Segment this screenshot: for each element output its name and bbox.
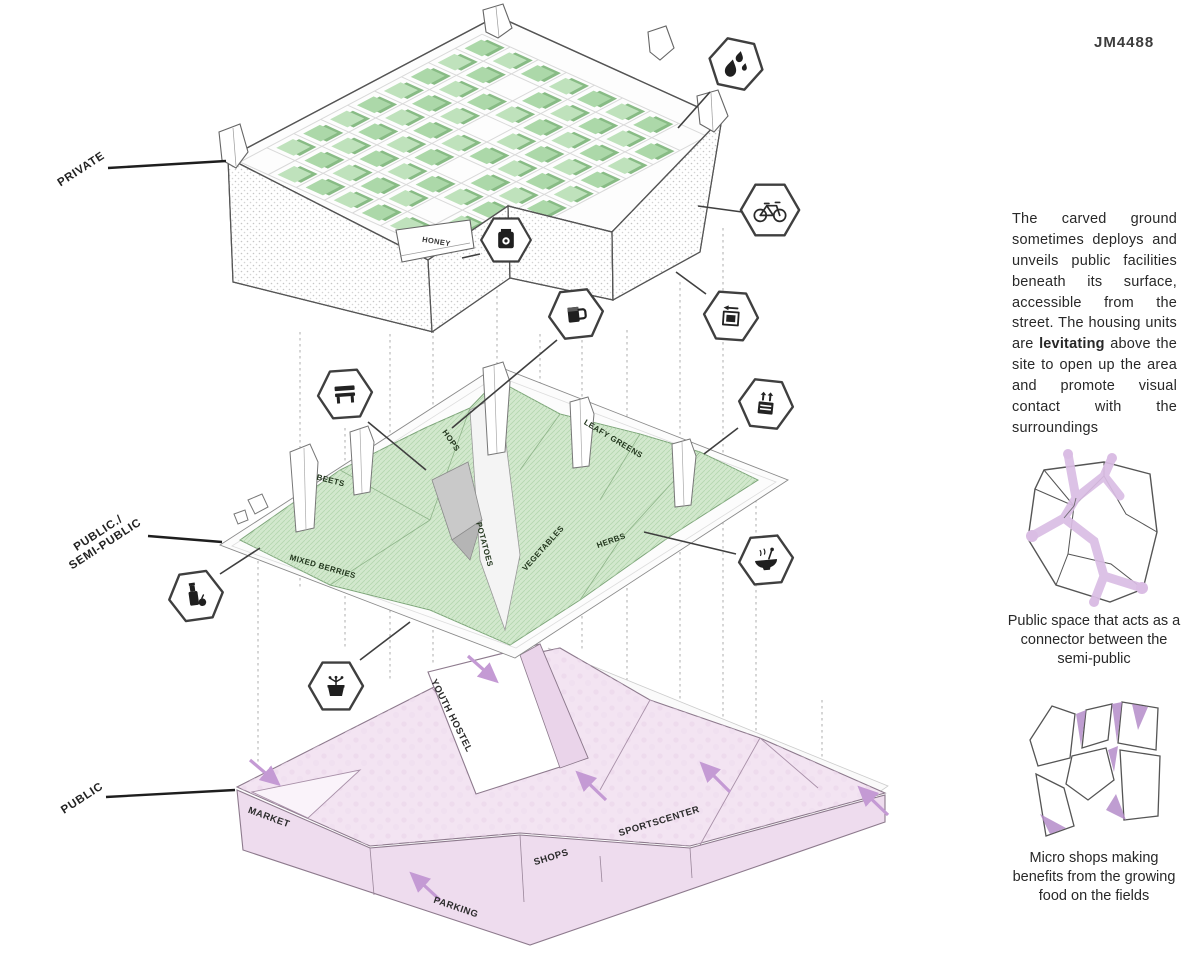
micro-shops-mini-diagram	[1020, 698, 1168, 846]
water-drops-icon	[705, 35, 768, 92]
connector-mini-diagram	[1016, 446, 1168, 608]
bench-icon	[316, 369, 373, 419]
description-paragraph: The carved ground sometimes deploys and …	[1012, 209, 1177, 439]
bicycle-icon	[741, 185, 799, 236]
private-level-drawing: HONEY	[219, 4, 728, 332]
package-return-icon	[702, 291, 759, 341]
milk-bottle-icon	[166, 569, 226, 623]
project-code: JM4488	[1094, 34, 1154, 51]
honey-jar-icon	[481, 218, 531, 261]
micro-shops-caption: Micro shops making benefits from the gro…	[1004, 849, 1184, 906]
level-labels: PRIVATE PUBLIC./ SEMI-PUBLIC PUBLIC	[56, 150, 235, 817]
paragraph-bold-word: levitating	[1039, 336, 1105, 352]
exploded-axonometric-diagram: MARKET PARKING SHOPS SPORTSCENTER YOUTH …	[0, 0, 1000, 953]
level-label-private: PRIVATE	[56, 150, 108, 189]
food-bowl-icon	[737, 534, 795, 585]
potted-plant-icon	[309, 663, 363, 710]
paragraph-text: The carved ground sometimes deploys and …	[1012, 211, 1177, 352]
connector-caption: Public space that acts as a connector be…	[1004, 612, 1184, 669]
exploded-axonometric-page: JM4488	[0, 0, 1200, 953]
compost-bin-icon	[737, 378, 796, 430]
level-label-public: PUBLIC	[59, 780, 105, 816]
semi-public-level-drawing: HOPS BEETS MIXED BERRIES POTATOES VEGETA…	[220, 362, 788, 658]
